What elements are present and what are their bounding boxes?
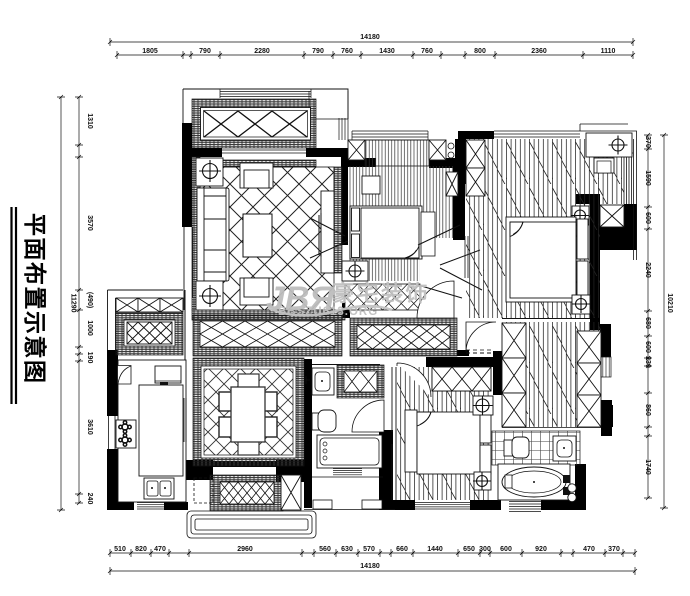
svg-text:560: 560 — [319, 546, 331, 553]
svg-text:14180: 14180 — [360, 34, 380, 41]
svg-text:680: 680 — [644, 317, 651, 329]
svg-text:2280: 2280 — [254, 48, 270, 55]
svg-text:630: 630 — [341, 546, 353, 553]
svg-text:510: 510 — [114, 546, 126, 553]
svg-text:300: 300 — [479, 546, 491, 553]
svg-text:790: 790 — [312, 48, 324, 55]
svg-text:1590: 1590 — [644, 170, 651, 186]
svg-text:600: 600 — [644, 212, 651, 224]
svg-text:240: 240 — [86, 493, 93, 505]
svg-text:600: 600 — [500, 546, 512, 553]
svg-text:3570: 3570 — [86, 215, 93, 231]
svg-text:860: 860 — [644, 404, 651, 416]
svg-text:600: 600 — [644, 341, 651, 353]
svg-text:230: 230 — [644, 356, 651, 368]
svg-text:760: 760 — [421, 48, 433, 55]
svg-text:470: 470 — [583, 546, 595, 553]
svg-text:2360: 2360 — [531, 48, 547, 55]
svg-text:2960: 2960 — [237, 546, 253, 553]
svg-text:1805: 1805 — [142, 48, 158, 55]
svg-text:(490): (490) — [86, 292, 93, 308]
svg-text:760: 760 — [341, 48, 353, 55]
svg-text:1000: 1000 — [86, 320, 93, 336]
svg-text:1430: 1430 — [379, 48, 395, 55]
svg-text:3610: 3610 — [86, 419, 93, 435]
svg-text:370: 370 — [608, 546, 620, 553]
svg-text:920: 920 — [535, 546, 547, 553]
svg-text:1740: 1740 — [644, 459, 651, 475]
svg-text:660: 660 — [396, 546, 408, 553]
svg-text:平面布置示意图: 平面布置示意图 — [22, 213, 48, 385]
svg-text:470: 470 — [154, 546, 166, 553]
svg-text:2240: 2240 — [644, 262, 651, 278]
svg-text:190: 190 — [86, 352, 93, 364]
svg-text:1440: 1440 — [427, 546, 443, 553]
svg-text:570: 570 — [363, 546, 375, 553]
svg-text:650: 650 — [463, 546, 475, 553]
svg-text:790: 790 — [199, 48, 211, 55]
svg-text:1310: 1310 — [86, 113, 93, 129]
svg-text:豪宅装饰: 豪宅装饰 — [332, 281, 430, 306]
svg-text:10210: 10210 — [666, 293, 673, 313]
svg-text:1110: 1110 — [601, 48, 616, 55]
svg-text:370: 370 — [644, 136, 651, 148]
svg-text:800: 800 — [474, 48, 486, 55]
svg-text:820: 820 — [135, 546, 147, 553]
svg-text:14180: 14180 — [360, 563, 380, 570]
